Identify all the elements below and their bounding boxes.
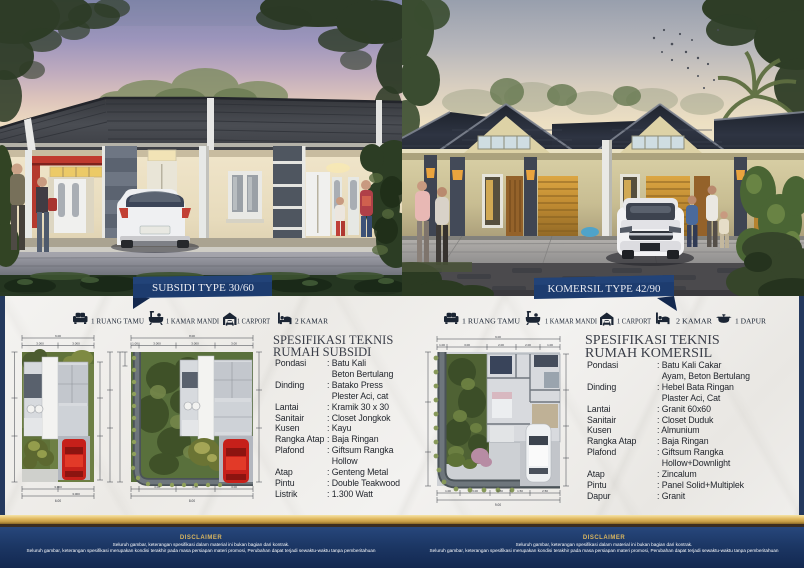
svg-text:1 RUANG TAMU: 1 RUANG TAMU [91, 318, 144, 326]
svg-text:3.000: 3.000 [153, 342, 161, 346]
svg-text:1.00: 1.00 [445, 489, 451, 493]
svg-text:3.00: 3.00 [231, 485, 237, 489]
svg-text:1 KAMAR MANDI: 1 KAMAR MANDI [545, 318, 598, 326]
svg-text:1 RUANG TAMU: 1 RUANG TAMU [462, 318, 520, 326]
svg-text:8.00: 8.00 [189, 334, 195, 338]
svg-text:1.50: 1.50 [497, 489, 503, 493]
svg-text:1.00: 1.00 [547, 343, 553, 347]
svg-text:3.00: 3.00 [231, 342, 237, 346]
svg-text:2.00: 2.00 [525, 343, 531, 347]
svg-text:6.00: 6.00 [55, 499, 61, 502]
svg-text:3.000: 3.000 [72, 342, 80, 346]
svg-text:2.00: 2.00 [498, 343, 504, 347]
svg-text:1 CARPORT: 1 CARPORT [617, 318, 652, 326]
svg-text:2 KAMAR: 2 KAMAR [295, 318, 328, 326]
svg-text:3.00: 3.00 [464, 343, 470, 347]
svg-text:1.50: 1.50 [517, 489, 523, 493]
svg-text:6.00: 6.00 [55, 334, 61, 338]
svg-text:3.000: 3.000 [54, 485, 62, 489]
svg-text:1.00: 1.00 [132, 342, 138, 346]
svg-text:3.00: 3.00 [192, 485, 198, 489]
svg-text:2 KAMAR: 2 KAMAR [676, 318, 712, 326]
svg-text:2.50: 2.50 [542, 489, 548, 493]
svg-text:1 KAMAR MANDI: 1 KAMAR MANDI [166, 318, 220, 326]
svg-text:1 CARPORT: 1 CARPORT [237, 318, 271, 326]
svg-text:3.000: 3.000 [36, 342, 44, 346]
svg-text:3.000: 3.000 [72, 492, 80, 496]
svg-text:9.00: 9.00 [495, 335, 501, 339]
svg-text:3.00: 3.00 [472, 489, 478, 493]
svg-text:SUBSIDI TYPE 30/60: SUBSIDI TYPE 30/60 [152, 283, 254, 294]
svg-text:KOMERSIL TYPE 42/90: KOMERSIL TYPE 42/90 [548, 284, 661, 295]
svg-text:1 DAPUR: 1 DAPUR [735, 318, 766, 326]
svg-text:9.00: 9.00 [495, 503, 501, 507]
svg-text:8.00: 8.00 [189, 499, 195, 502]
svg-text:3.000: 3.000 [191, 342, 199, 346]
svg-text:3.00: 3.00 [154, 485, 160, 489]
svg-text:1.00: 1.00 [439, 343, 445, 347]
